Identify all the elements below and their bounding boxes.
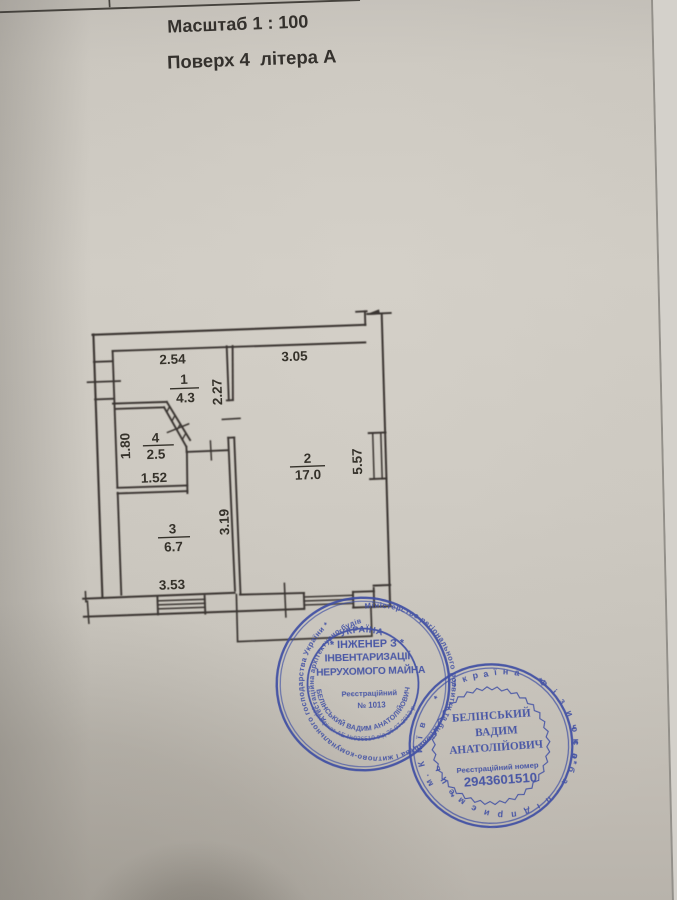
svg-text:1: 1 <box>180 372 189 387</box>
svg-text:5.57: 5.57 <box>349 448 365 475</box>
svg-text:1.52: 1.52 <box>141 470 168 486</box>
svg-text:* ІНЖЕНЕР З *: * ІНЖЕНЕР З * <box>330 637 405 651</box>
svg-text:3.53: 3.53 <box>159 577 186 593</box>
svg-text:2: 2 <box>303 451 311 466</box>
svg-text:3.19: 3.19 <box>216 509 232 536</box>
svg-text:2.54: 2.54 <box>159 351 186 367</box>
svg-text:17.0: 17.0 <box>295 467 322 483</box>
svg-text:3.05: 3.05 <box>281 348 308 364</box>
svg-text:4: 4 <box>151 430 160 445</box>
svg-text:№ 1013: № 1013 <box>357 700 386 710</box>
svg-text:ІНВЕНТАРИЗАЦІЇ: ІНВЕНТАРИЗАЦІЇ <box>324 649 411 664</box>
svg-text:2.5: 2.5 <box>146 446 166 462</box>
svg-text:2.27: 2.27 <box>209 379 225 406</box>
svg-text:Реєстраційний: Реєстраційний <box>341 688 397 698</box>
svg-text:3: 3 <box>168 521 177 536</box>
svg-text:4.3: 4.3 <box>176 390 196 406</box>
svg-text:1.80: 1.80 <box>117 433 133 460</box>
svg-text:6.7: 6.7 <box>164 539 183 555</box>
